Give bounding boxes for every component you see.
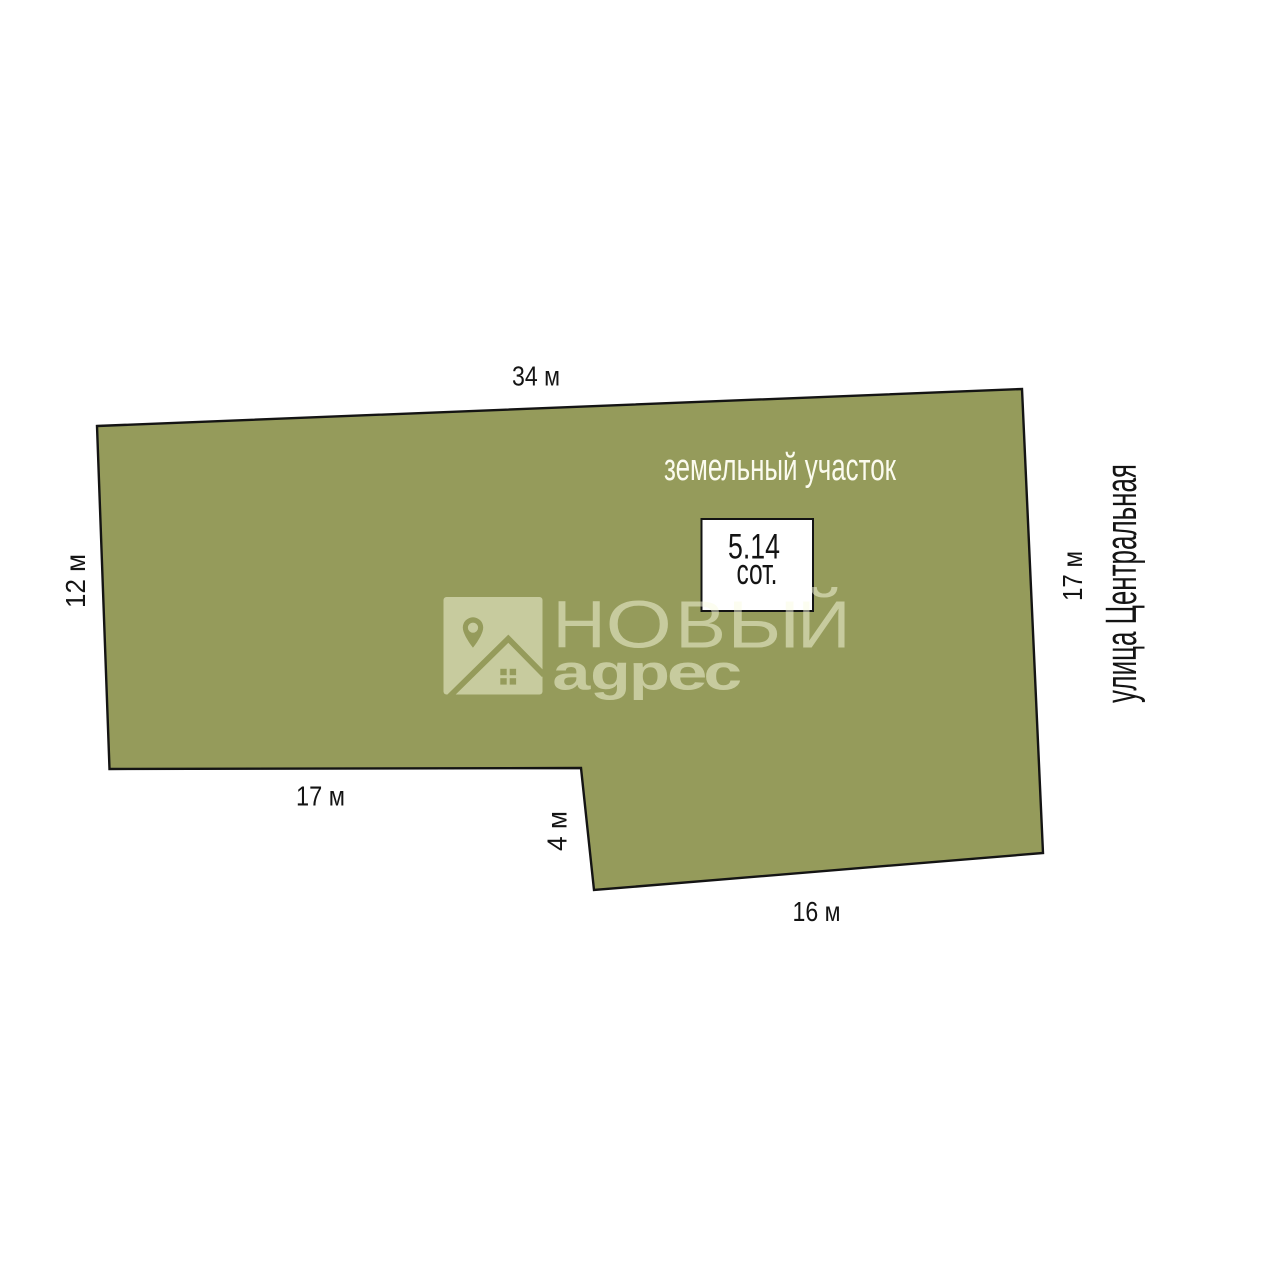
svg-text:Й: Й: [797, 587, 851, 663]
svg-text:4 м: 4 м: [542, 811, 573, 851]
svg-text:a: a: [552, 645, 592, 701]
svg-text:17 м: 17 м: [1057, 551, 1088, 601]
svg-text:земельный участок: земельный участок: [664, 447, 896, 489]
svg-text:p: p: [629, 645, 670, 701]
svg-text:12 м: 12 м: [60, 554, 91, 608]
svg-text:сот.: сот.: [737, 551, 778, 592]
svg-text:34 м: 34 м: [512, 361, 560, 392]
svg-text:16 м: 16 м: [793, 896, 841, 927]
svg-text:17 м: 17 м: [296, 781, 345, 812]
svg-text:c: c: [703, 645, 742, 701]
svg-text:g: g: [590, 645, 630, 701]
svg-text:e: e: [667, 645, 708, 701]
svg-text:улица Центральная: улица Центральная: [1097, 464, 1146, 703]
